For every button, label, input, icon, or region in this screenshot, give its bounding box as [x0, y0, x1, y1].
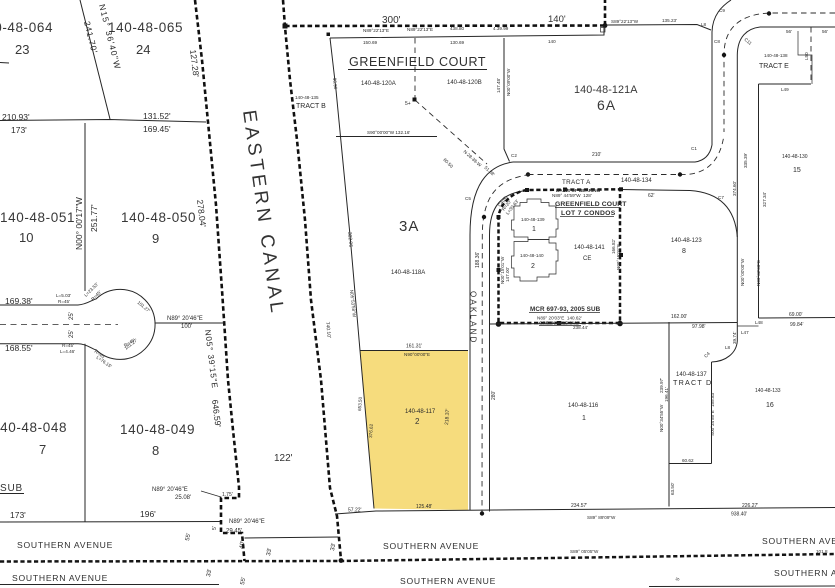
svg-text:L8: L8	[701, 22, 707, 27]
svg-text:S89° 89'09"W: S89° 89'09"W	[587, 515, 616, 520]
svg-text:238.44': 238.44'	[573, 325, 588, 330]
svg-text:327.34': 327.34'	[762, 192, 767, 207]
svg-text:GREENFIELD COURT: GREENFIELD COURT	[349, 55, 486, 69]
svg-text:SUB: SUB	[0, 483, 23, 494]
svg-text:R=45': R=45'	[62, 343, 74, 348]
svg-text:6A: 6A	[597, 97, 616, 113]
svg-text:140-48-064: 140-48-064	[0, 20, 53, 35]
svg-text:1: 1	[532, 226, 536, 233]
svg-text:S90°00'00"W 132.16': S90°00'00"W 132.16'	[367, 130, 410, 135]
svg-text:N89°22'13"E: N89°22'13"E	[363, 28, 389, 33]
svg-text:140-48-130: 140-48-130	[782, 154, 808, 160]
svg-text:57.22': 57.22'	[348, 508, 362, 514]
svg-text:2: 2	[415, 417, 420, 426]
svg-text:4.39.99: 4.39.99	[493, 26, 509, 31]
svg-text:140-48-118A: 140-48-118A	[391, 270, 425, 276]
svg-text:C7: C7	[718, 195, 724, 200]
svg-text:3A: 3A	[399, 218, 419, 235]
svg-text:TRACT E: TRACT E	[759, 63, 789, 70]
svg-text:N00°15'01"E: N00°15'01"E	[616, 244, 621, 270]
svg-text:8: 8	[682, 248, 686, 255]
svg-text:N90°00'00"E: N90°00'00"E	[404, 352, 430, 357]
svg-text:8: 8	[152, 443, 159, 458]
svg-text:S89° 05'05"W: S89° 05'05"W	[570, 549, 599, 554]
svg-text:N89° 20'46"E: N89° 20'46"E	[229, 519, 265, 525]
svg-text:N00°32'00"E: N00°32'00"E	[756, 260, 761, 286]
svg-text:140-48-116: 140-48-116	[568, 403, 599, 409]
svg-text:938.40': 938.40'	[731, 512, 747, 518]
svg-text:9: 9	[152, 231, 159, 246]
svg-text:N89° 20'46"E: N89° 20'46"E	[152, 487, 188, 493]
svg-text:L=5.03': L=5.03'	[56, 293, 71, 298]
svg-text:161.31': 161.31'	[406, 344, 422, 350]
svg-text:140': 140'	[548, 14, 566, 25]
svg-text:140-48-049: 140-48-049	[120, 422, 195, 437]
svg-text:SOUTHERN A: SOUTHERN A	[774, 568, 835, 578]
svg-text:OAKLAND: OAKLAND	[469, 291, 478, 345]
svg-text:140-48-140: 140-48-140	[520, 253, 544, 258]
svg-text:140-48-135: 140-48-135	[295, 95, 319, 100]
svg-text:100': 100'	[181, 324, 192, 330]
svg-text:438.80: 438.80	[450, 26, 464, 31]
svg-text:TRACT A: TRACT A	[562, 179, 591, 186]
svg-text:R=45': R=45'	[58, 299, 70, 304]
svg-text:140-48-134: 140-48-134	[621, 178, 652, 184]
svg-text:376.62: 376.62	[368, 423, 374, 438]
svg-text:125.48': 125.48'	[416, 504, 432, 510]
svg-text:15: 15	[793, 167, 801, 174]
svg-text:N00°09'00"W: N00°09'00"W	[506, 68, 511, 96]
svg-text:63.50': 63.50'	[670, 483, 675, 495]
svg-text:140-48-120A: 140-48-120A	[361, 81, 396, 87]
svg-text:140: 140	[548, 39, 556, 44]
svg-text:N00°34'55"W: N00°34'55"W	[659, 404, 664, 432]
svg-text:GREENFIELD COURT: GREENFIELD COURT	[555, 201, 627, 208]
svg-text:155.83': 155.83'	[710, 392, 715, 407]
svg-text:173': 173'	[11, 125, 27, 135]
svg-text:S00°34'55"E: S00°34'55"E	[710, 410, 715, 436]
svg-text:196.41': 196.41'	[664, 387, 669, 402]
svg-text:140-48-139: 140-48-139	[521, 217, 545, 222]
svg-text:210.93': 210.93'	[2, 112, 30, 122]
svg-text:147.48': 147.48'	[496, 78, 501, 93]
svg-text:C8: C8	[714, 39, 720, 44]
svg-text:SOUTHERN AVENUE: SOUTHERN AVENUE	[400, 576, 496, 586]
svg-text:SOUTHERN AVENUE: SOUTHERN AVENUE	[12, 573, 108, 583]
svg-text:300': 300'	[382, 15, 401, 26]
svg-text:150.69: 150.69	[363, 40, 377, 45]
svg-text:62': 62'	[648, 193, 655, 199]
svg-text:140-48-138: 140-48-138	[764, 53, 788, 58]
svg-text:25.08': 25.08'	[175, 495, 191, 501]
svg-text:25': 25'	[69, 330, 75, 338]
svg-text:69.00': 69.00'	[789, 312, 803, 318]
svg-text:101.8: 101.8	[816, 549, 828, 554]
svg-text:226.27': 226.27'	[742, 503, 758, 509]
svg-text:162.00': 162.00'	[671, 314, 687, 320]
svg-text:TRACT B: TRACT B	[296, 103, 326, 110]
svg-text:653.50: 653.50	[357, 396, 363, 411]
svg-text:99.84': 99.84'	[790, 322, 804, 328]
svg-text:374.60': 374.60'	[732, 181, 737, 196]
svg-text:L8: L8	[725, 345, 731, 350]
svg-text:1: 1	[582, 415, 586, 422]
svg-text:L=4.46': L=4.46'	[60, 349, 75, 354]
svg-text:N89° 44'59"W 128': N89° 44'59"W 128'	[552, 193, 592, 198]
svg-text:251.77': 251.77'	[89, 204, 99, 232]
svg-text:140-48-117: 140-48-117	[405, 409, 436, 415]
svg-text:TRACT D: TRACT D	[673, 378, 712, 387]
svg-text:SOUTHERN AVENUE: SOUTHERN AVENUE	[17, 540, 113, 550]
svg-text:188.36': 188.36'	[475, 252, 481, 268]
svg-text:210': 210'	[592, 152, 601, 158]
svg-text:169.38': 169.38'	[5, 296, 33, 306]
svg-text:234.57': 234.57'	[571, 503, 587, 509]
svg-text:140-48-121A: 140-48-121A	[574, 84, 638, 96]
svg-text:MCR 697-93, 2005 SUB: MCR 697-93, 2005 SUB	[530, 306, 601, 313]
svg-text:140-48-051: 140-48-051	[0, 210, 75, 225]
svg-text:122': 122'	[274, 453, 293, 464]
svg-text:196': 196'	[140, 509, 156, 519]
svg-text:L47: L47	[741, 330, 749, 335]
svg-text:L49: L49	[781, 87, 789, 92]
svg-text:2: 2	[531, 263, 535, 270]
svg-text:335.39': 335.39'	[743, 153, 748, 168]
svg-text:LOT 7 CONDOS: LOT 7 CONDOS	[561, 210, 616, 217]
svg-text:24: 24	[136, 42, 150, 57]
svg-text:56': 56'	[786, 29, 792, 34]
svg-text:131.52': 131.52'	[143, 111, 171, 121]
svg-text:140-48-065: 140-48-065	[108, 20, 183, 35]
svg-text:140-48-048: 140-48-048	[0, 420, 67, 435]
svg-text:N89°22'13"E: N89°22'13"E	[407, 27, 433, 32]
svg-text:N00°00'00"W: N00°00'00"W	[740, 258, 745, 286]
svg-text:140-48-120B: 140-48-120B	[447, 80, 482, 86]
svg-text:1.75': 1.75'	[222, 492, 233, 498]
svg-text:C2: C2	[511, 153, 517, 158]
svg-text:SOUTHERN AVENUE: SOUTHERN AVENUE	[383, 541, 479, 551]
svg-text:L50: L50	[804, 52, 809, 60]
svg-text:135.23': 135.23'	[662, 18, 677, 23]
svg-text:140-48-141: 140-48-141	[574, 245, 605, 251]
svg-text:218.37': 218.37'	[444, 408, 451, 425]
svg-text:CE: CE	[583, 256, 591, 262]
svg-text:173': 173'	[10, 510, 26, 520]
svg-text:23: 23	[15, 42, 29, 57]
svg-text:SOUTHERN AVEN: SOUTHERN AVEN	[762, 536, 835, 546]
svg-text:C1: C1	[691, 146, 697, 151]
svg-text:140-48-123: 140-48-123	[671, 238, 702, 244]
svg-text:C9: C9	[719, 8, 725, 13]
svg-text:N00° 00'17"W: N00° 00'17"W	[74, 197, 84, 250]
svg-text:130.69: 130.69	[450, 40, 464, 45]
svg-text:5+: 5+	[405, 101, 411, 107]
svg-text:97.98': 97.98'	[692, 324, 706, 330]
svg-text:39.74': 39.74'	[732, 332, 737, 344]
svg-text:5': 5'	[212, 526, 218, 530]
svg-text:C5: C5	[465, 196, 471, 201]
svg-text:25': 25'	[69, 312, 75, 320]
svg-text:147.00': 147.00'	[505, 267, 510, 282]
svg-text:16: 16	[766, 402, 774, 409]
svg-text:L48: L48	[755, 320, 763, 325]
svg-text:140-48-133: 140-48-133	[755, 388, 781, 394]
svg-text:7: 7	[39, 442, 46, 457]
svg-text:N89° 20'46"E: N89° 20'46"E	[167, 316, 203, 322]
svg-text:10: 10	[19, 230, 33, 245]
svg-text:169.45': 169.45'	[143, 124, 171, 134]
svg-text:280': 280'	[491, 391, 497, 400]
svg-text:56': 56'	[822, 29, 828, 34]
svg-text:140-48-050: 140-48-050	[121, 210, 196, 225]
svg-text:60.62: 60.62	[682, 458, 694, 463]
svg-text:29.45': 29.45'	[226, 529, 242, 535]
svg-text:S89°22'13"W: S89°22'13"W	[611, 19, 639, 24]
svg-text:168.55': 168.55'	[5, 343, 33, 353]
